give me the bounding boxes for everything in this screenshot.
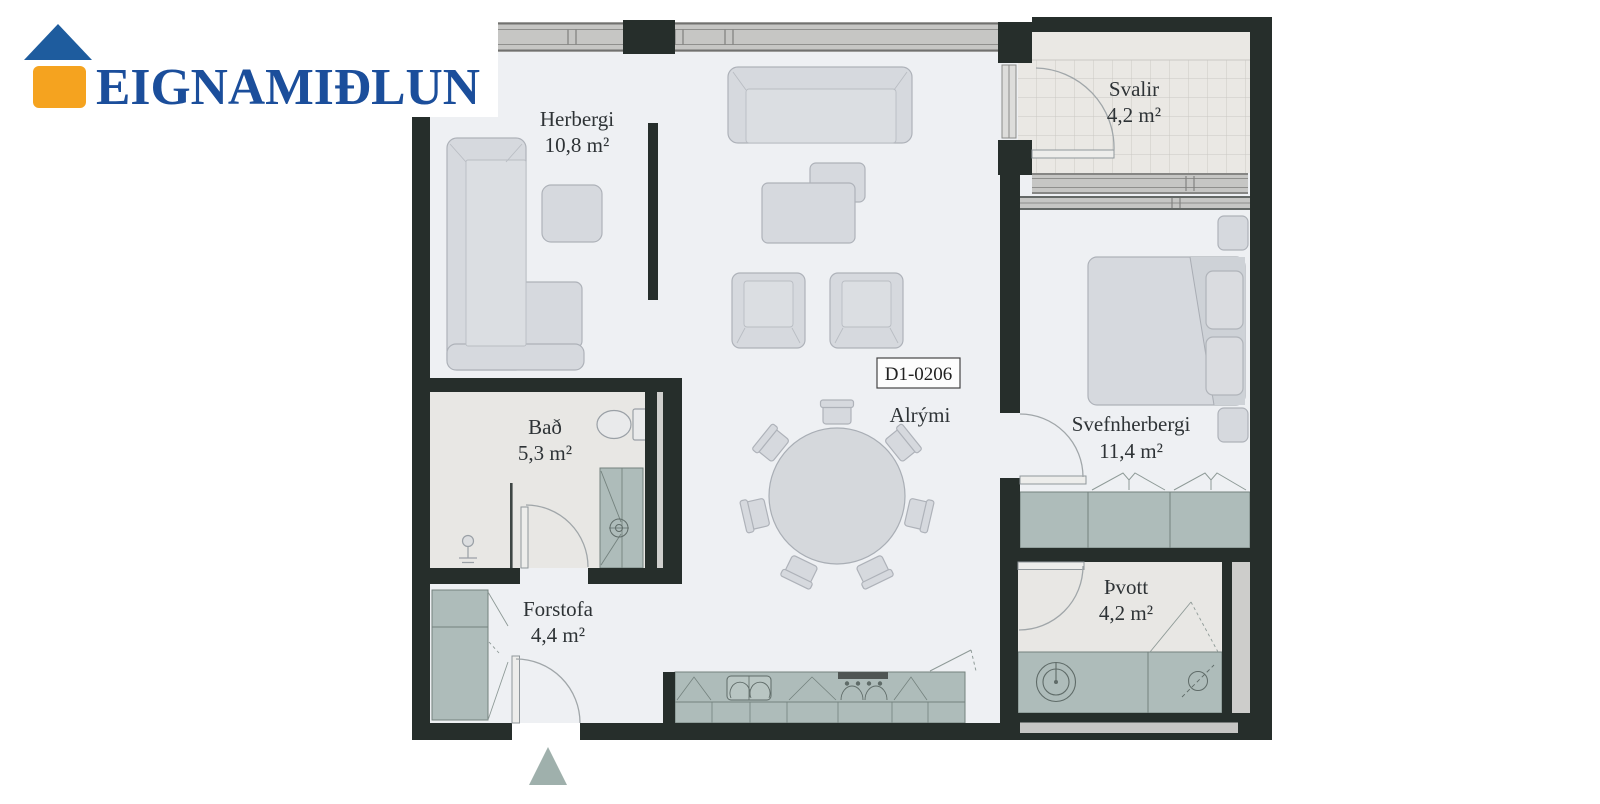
room-area-herbergi: 10,8 m² xyxy=(545,133,610,157)
wall-bath-bottom xyxy=(412,568,520,584)
wall-bottom xyxy=(412,723,512,740)
window-bedroom xyxy=(1018,196,1250,210)
side-table xyxy=(542,185,602,242)
wall-laundry-top xyxy=(1000,548,1250,562)
wall-right xyxy=(1250,17,1272,740)
shower-screen xyxy=(510,483,513,568)
wall-pier-top xyxy=(623,20,675,54)
room-label-forstofa: Forstofa xyxy=(523,597,594,621)
logo-house-icon xyxy=(33,66,86,108)
room-area-thvott: 4,2 m² xyxy=(1099,601,1153,625)
floorplan-page: Herbergi 10,8 m² Svalir 4,2 m² Bað 5,3 m… xyxy=(0,0,1600,804)
pillow xyxy=(1206,337,1243,395)
balcony-door-frame xyxy=(1002,65,1016,138)
wall-partition xyxy=(648,123,658,300)
room-area-svalir: 4,2 m² xyxy=(1107,103,1161,127)
window-laundry-strip xyxy=(1020,723,1238,734)
dining-chair xyxy=(821,400,854,424)
logo-roof-icon xyxy=(24,24,92,60)
wall-bottom xyxy=(580,723,1000,740)
bath-wall-shaft xyxy=(657,378,663,584)
brand-logo-graphic: EIGNAMIÐLUN xyxy=(0,0,498,117)
wall-kitchen-stub xyxy=(663,672,675,723)
wall-laundry-right xyxy=(1222,558,1232,713)
wall-bedroom-divider xyxy=(1000,140,1020,413)
wall-bath-bottom xyxy=(588,568,682,584)
wall-left xyxy=(412,117,430,740)
pillow xyxy=(1206,271,1243,329)
brand-name: EIGNAMIÐLUN xyxy=(96,59,480,116)
kitchen-sink xyxy=(727,676,771,700)
unit-id-box: D1-0206 xyxy=(877,358,960,388)
wall-laundry-left xyxy=(1000,562,1018,723)
wall-bath-top xyxy=(412,378,682,392)
double-bed xyxy=(1088,257,1245,405)
room-area-svefnherbergi: 11,4 m² xyxy=(1099,439,1163,463)
nightstand xyxy=(1218,408,1248,442)
floorplan-drawing: Herbergi 10,8 m² Svalir 4,2 m² Bað 5,3 m… xyxy=(400,10,1280,790)
armchair xyxy=(830,273,903,348)
window-top-band xyxy=(488,22,1000,52)
living-sofa xyxy=(728,67,912,143)
room-label-bad: Bað xyxy=(528,415,562,439)
wall-bath-right xyxy=(663,378,682,584)
wall-balcony-top xyxy=(1032,17,1250,32)
armchair xyxy=(732,273,805,348)
wall-bath-right xyxy=(645,378,657,584)
balcony-railing xyxy=(1032,173,1248,194)
room-area-bad: 5,3 m² xyxy=(518,441,572,465)
duct-shaft xyxy=(1232,558,1250,713)
unit-id: D1-0206 xyxy=(885,364,953,385)
room-label-alrymi: Alrými xyxy=(890,403,951,427)
shower xyxy=(600,468,643,568)
room-label-thvott: Þvott xyxy=(1104,575,1149,599)
brand-logo: EIGNAMIÐLUN xyxy=(0,0,498,117)
entrance-marker-icon xyxy=(529,747,567,785)
room-area-forstofa: 4,4 m² xyxy=(531,623,585,647)
toilet xyxy=(597,409,650,440)
room-label-svalir: Svalir xyxy=(1109,77,1159,101)
wall-balcony-pier xyxy=(998,22,1032,63)
room-label-herbergi: Herbergi xyxy=(540,107,614,131)
nightstand xyxy=(1218,216,1248,250)
room-label-svefnherbergi: Svefnherbergi xyxy=(1072,412,1191,436)
